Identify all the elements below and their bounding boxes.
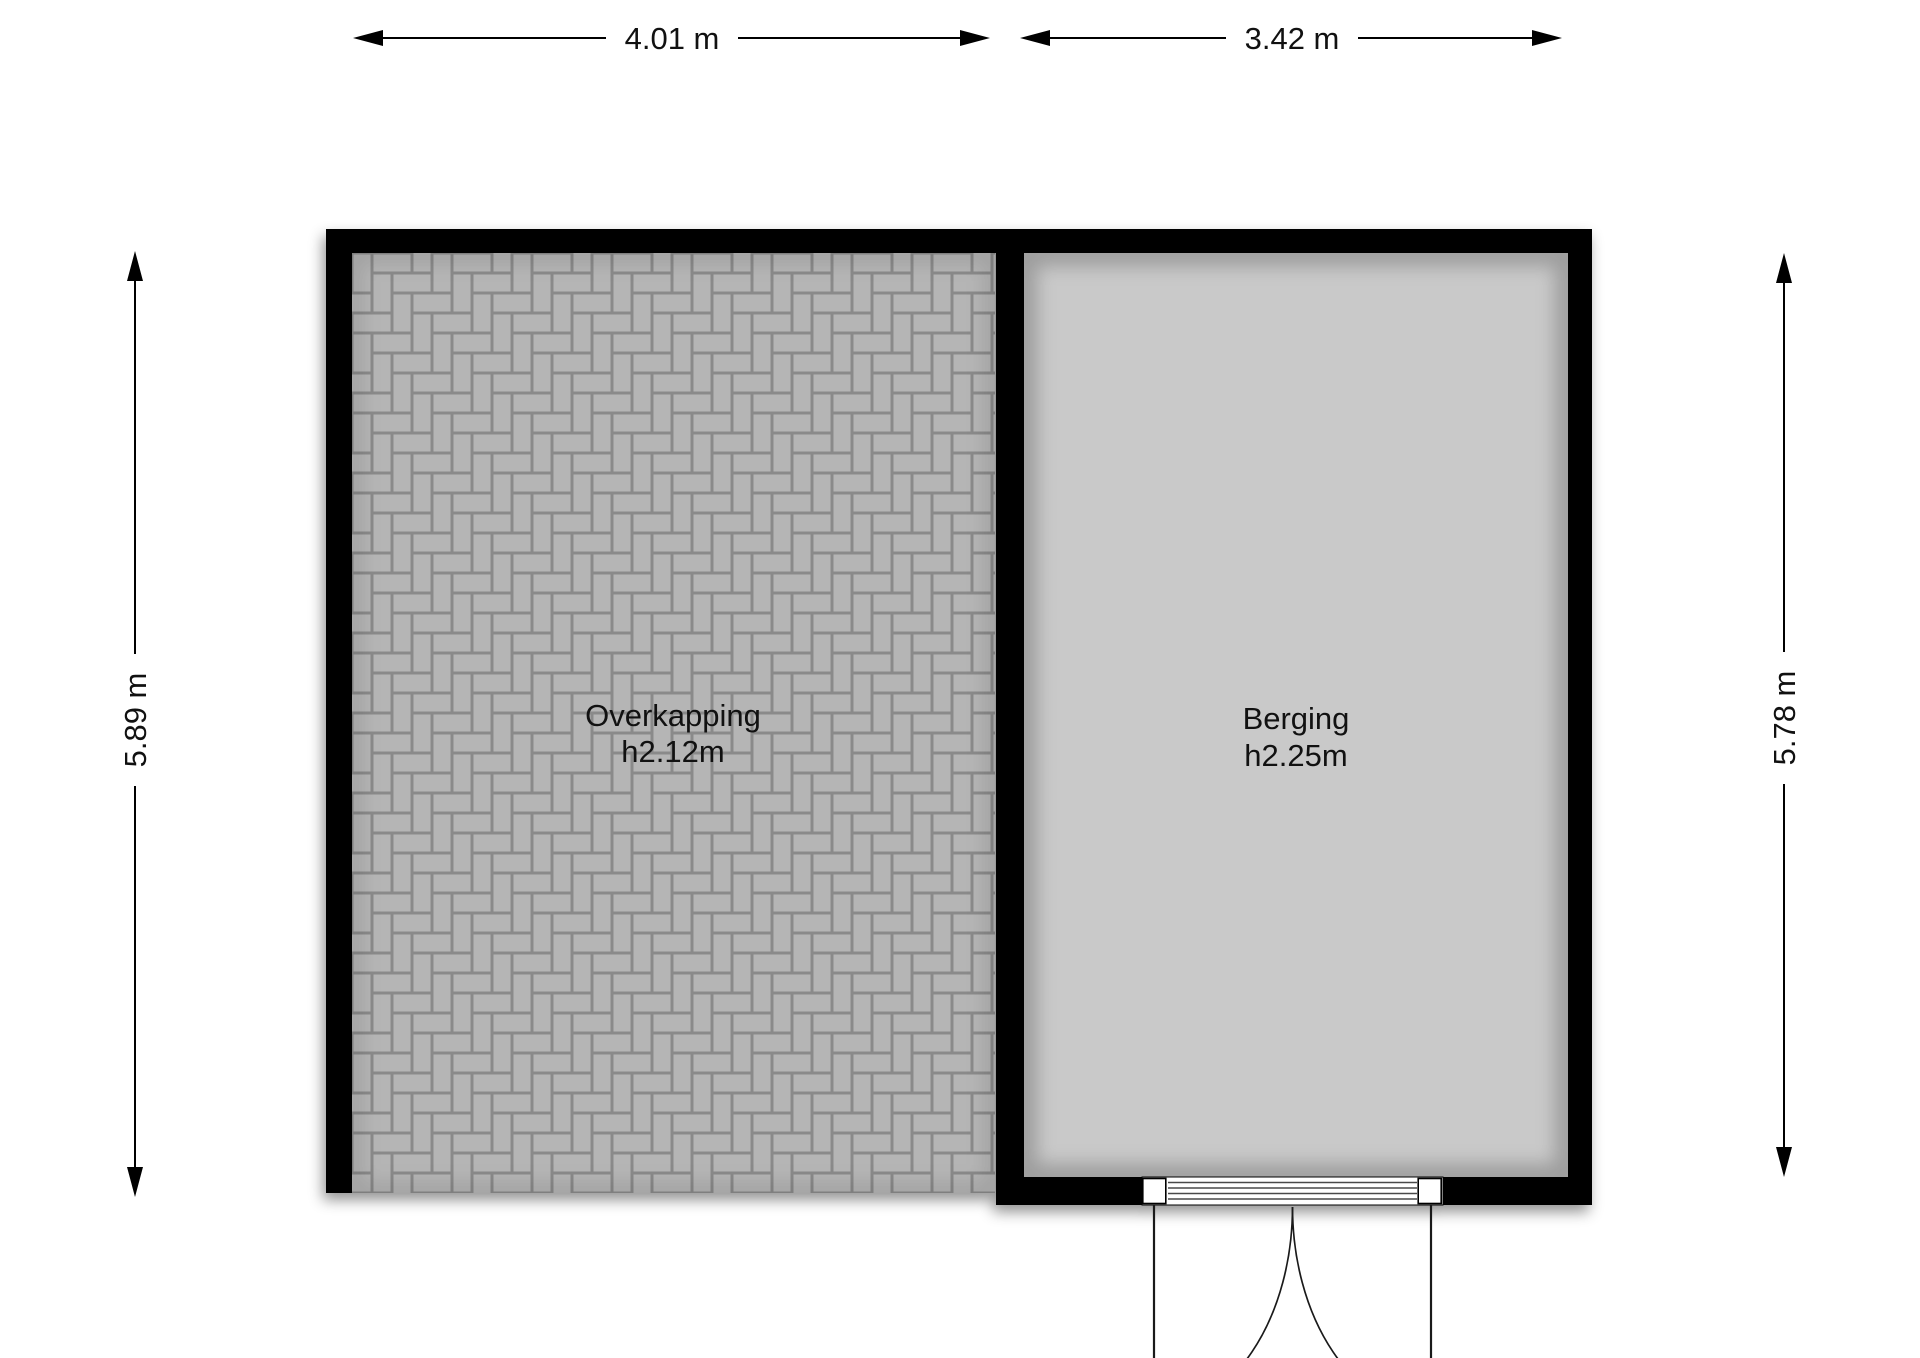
- floorplan-canvas: Overkapping h2.12m Berging h2.25m 4.01 m…: [0, 0, 1920, 1358]
- dimension-label-top-left: 4.01 m: [625, 21, 720, 56]
- wall-left: [326, 229, 352, 1193]
- arrowhead-left-icon: [353, 30, 383, 46]
- wall-divider: [996, 229, 1024, 1205]
- door-swing-arc-left: [1154, 1207, 1293, 1358]
- door-opening: [1142, 1177, 1443, 1205]
- wall-bottom-left-of-door: [996, 1177, 1142, 1205]
- arrowhead-down-icon: [127, 1167, 143, 1197]
- room-name-overkapping: Overkapping: [585, 698, 761, 733]
- door-jamb-right: [1418, 1179, 1441, 1204]
- arrowhead-up-icon: [1776, 253, 1792, 283]
- arrowhead-left-icon: [1020, 30, 1050, 46]
- dimension-label-left: 5.89 m: [118, 673, 153, 768]
- arrowhead-up-icon: [127, 251, 143, 281]
- wall-bottom-right-of-door: [1443, 1177, 1592, 1205]
- dimension-label-top-right: 3.42 m: [1245, 21, 1340, 56]
- floorplan-svg: Overkapping h2.12m Berging h2.25m 4.01 m…: [0, 0, 1920, 1358]
- wall-top: [326, 229, 1592, 253]
- arrowhead-down-icon: [1776, 1147, 1792, 1177]
- door-swing-arc-right: [1293, 1207, 1432, 1358]
- dimension-label-right: 5.78 m: [1767, 671, 1802, 766]
- arrowhead-right-icon: [1532, 30, 1562, 46]
- door-threshold: [1142, 1177, 1443, 1205]
- room-height-overkapping: h2.12m: [621, 734, 724, 769]
- wall-right: [1568, 229, 1592, 1205]
- room-name-berging: Berging: [1243, 701, 1350, 736]
- arrowhead-right-icon: [960, 30, 990, 46]
- room-height-berging: h2.25m: [1244, 738, 1347, 773]
- double-door: [1154, 1205, 1431, 1358]
- floorplan-body: [326, 229, 1592, 1205]
- door-jamb-left: [1143, 1179, 1166, 1204]
